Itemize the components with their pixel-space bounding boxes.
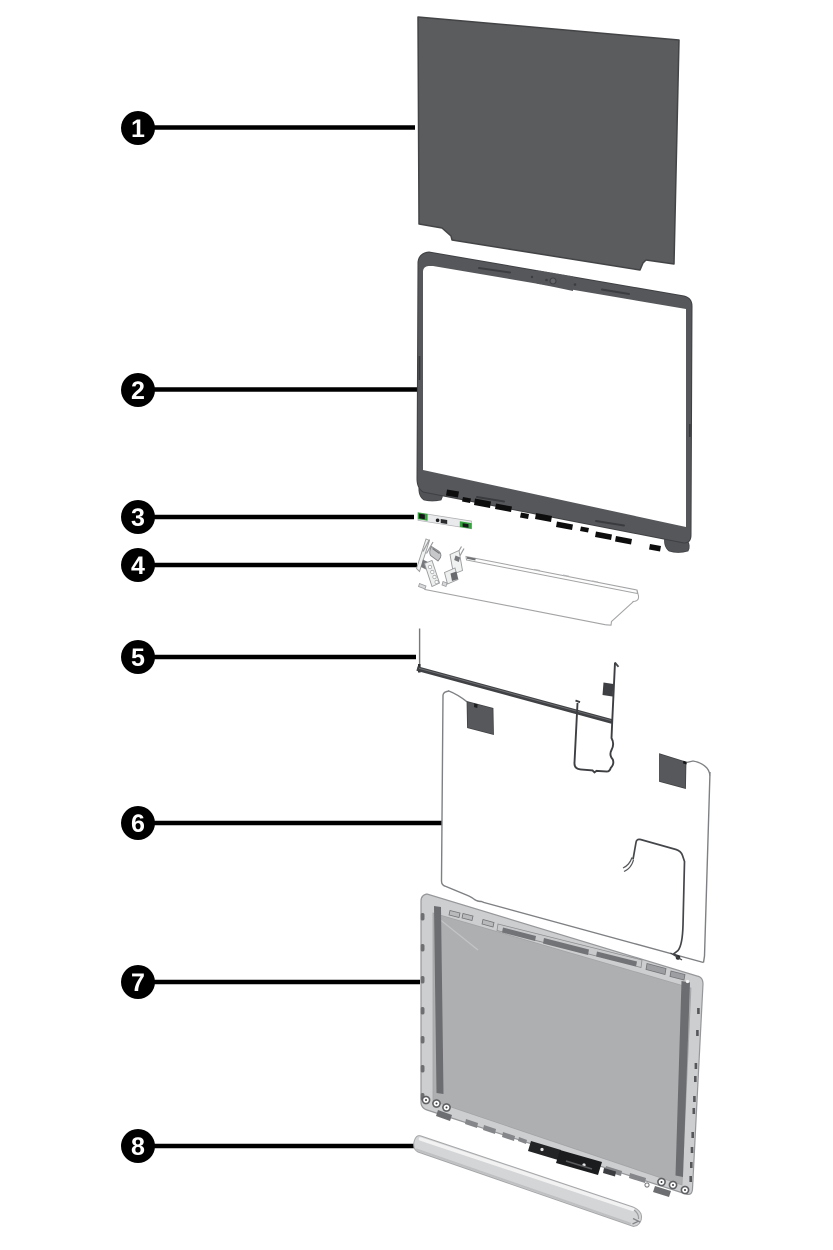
svg-text:3: 3 bbox=[131, 504, 145, 532]
svg-text:2: 2 bbox=[131, 377, 145, 405]
svg-text:1: 1 bbox=[131, 115, 145, 143]
svg-text:7: 7 bbox=[131, 969, 145, 997]
svg-text:4: 4 bbox=[131, 552, 145, 580]
svg-text:6: 6 bbox=[131, 810, 145, 838]
svg-text:5: 5 bbox=[131, 644, 145, 672]
svg-text:8: 8 bbox=[131, 1133, 145, 1161]
